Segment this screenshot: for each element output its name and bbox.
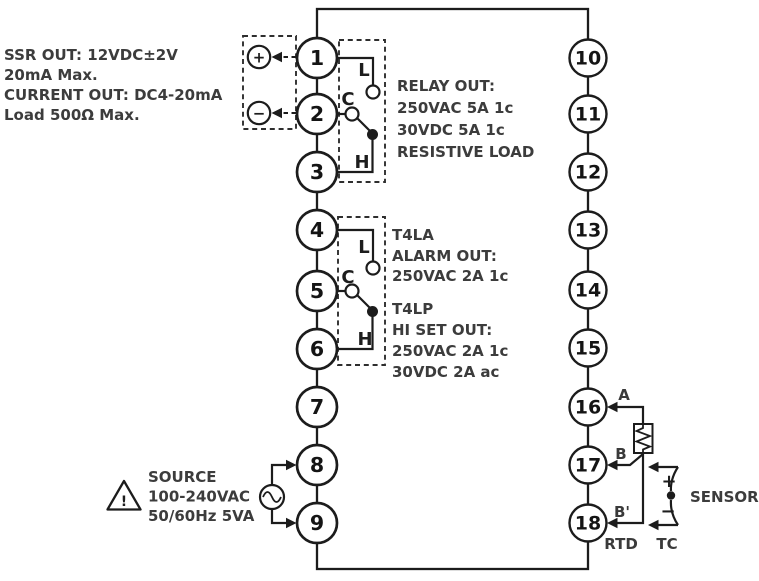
source-note-line-2: 100-240VAC [148,488,250,506]
source-wire-top [272,465,287,485]
terminal-17-number: 17 [575,455,601,477]
terminal-5-number: 5 [310,279,324,303]
hiset-note-line-2: HI SET OUT: [392,321,492,339]
hiset-note-line-1: T4LP [392,300,433,318]
sensor-input-section: A B B' RTD TC + − SENSOR [604,386,759,553]
terminal-9: 9 [297,503,337,543]
power-source-section: ! SOURCE 100-240VAC 50/60Hz 5VA [108,460,297,528]
terminal-18: 18 [570,505,607,542]
terminal-column-right: 10 11 12 13 14 15 16 17 [570,40,607,542]
relay2-h-label: H [357,329,372,350]
rtd-b-label: B [615,445,626,463]
wiring-diagram-canvas: + − SSR OUT: 12VDC±2V 20mA Max. CURRENT … [0,0,759,581]
relay1-l-label: L [358,60,369,81]
terminal-wiring-diagram: + − SSR OUT: 12VDC±2V 20mA Max. CURRENT … [0,0,759,581]
source-arrowhead-top-icon [286,460,297,470]
terminal-8: 8 [297,445,337,485]
terminal-15: 15 [570,330,607,367]
relay1-c-label: C [341,89,354,110]
relay-note-line-4: RESISTIVE LOAD [397,143,534,161]
relay2-h-dot-icon [367,306,378,317]
tc-plus-sign: + [661,471,676,492]
source-note-line-1: SOURCE [148,468,217,486]
terminal-12-number: 12 [575,162,601,184]
terminal-9-number: 9 [310,511,324,535]
tc-minus-arrowhead-icon [648,520,659,530]
terminal-6-number: 6 [310,337,324,361]
alarm-note-line-3: 250VAC 2A 1c [392,267,508,285]
relay2-l-label: L [358,237,369,258]
terminal-1-number: 1 [310,46,324,70]
alarm-note-line-1: T4LA [392,226,434,244]
tc-label: TC [656,535,677,553]
alarm-output-section: L C H T4LA ALARM OUT: 250VAC 2A 1c T4LP … [337,217,508,381]
ssr-note-line-2: 20mA Max. [4,66,98,84]
terminal-13: 13 [570,212,607,249]
tc-minus-sign: − [660,501,675,522]
rtd-a-wire [616,407,643,424]
rtd-a-label: A [618,386,630,404]
terminal-14: 14 [570,272,607,309]
relay2-c-label: C [341,267,354,288]
rtd-label: RTD [604,535,638,553]
analog-output-section: + − [243,36,296,129]
warning-exclamation: ! [121,494,127,510]
source-arrowhead-bottom-icon [286,518,297,528]
rtd-a-arrowhead-icon [607,402,618,412]
relay-note-line-2: 250VAC 5A 1c [397,99,513,117]
terminal-15-number: 15 [575,338,601,360]
rtd-bprime-label: B' [614,503,630,521]
terminal-7: 7 [297,387,337,427]
minus-arrowhead-icon [272,108,283,118]
terminal-13-number: 13 [575,220,601,242]
terminal-18-number: 18 [575,513,601,535]
tc-plus-arrowhead-icon [648,462,659,472]
terminal-10-number: 10 [575,48,601,70]
terminal-4: 4 [297,210,337,250]
relay1-l-contact-icon [367,86,380,99]
hiset-note-line-3: 250VAC 2A 1c [392,342,508,360]
alarm-note-line-2: ALARM OUT: [392,247,497,265]
hiset-note-line-4: 30VDC 2A ac [392,363,499,381]
terminal-7-number: 7 [310,395,324,419]
terminal-3-number: 3 [310,160,324,184]
plus-arrowhead-icon [272,52,283,62]
terminal-11-number: 11 [575,104,601,126]
ssr-note-line-1: SSR OUT: 12VDC±2V [4,46,178,64]
terminal-6: 6 [297,329,337,369]
sensor-label: SENSOR [690,488,759,506]
terminal-4-number: 4 [310,218,324,242]
terminal-1: 1 [297,38,337,78]
relay1-h-dot-icon [367,129,378,140]
terminal-3: 3 [297,152,337,192]
terminal-17: 17 [570,447,607,484]
ssr-note-line-4: Load 500Ω Max. [4,106,140,124]
plus-sign: + [253,49,266,67]
terminal-2-number: 2 [310,102,324,126]
terminal-5: 5 [297,271,337,311]
relay2-switch-arm [357,295,371,309]
tc-junction-icon [667,491,675,499]
terminal-14-number: 14 [575,280,601,302]
terminal-2: 2 [297,94,337,134]
terminal-11: 11 [570,96,607,133]
source-note-line-3: 50/60Hz 5VA [148,507,255,525]
terminal-column-left: 1 2 3 4 5 6 7 8 [297,38,337,543]
ssr-note: SSR OUT: 12VDC±2V 20mA Max. CURRENT OUT:… [4,46,223,124]
terminal-16-number: 16 [575,397,601,419]
terminal-12: 12 [570,154,607,191]
relay-note-line-3: 30VDC 5A 1c [397,121,505,139]
relay1-h-label: H [354,152,369,173]
relay-output-section: L C H RELAY OUT: 250VAC 5A 1c 30VDC 5A 1… [337,40,534,182]
relay1-switch-arm [357,118,371,132]
relay2-l-contact-icon [367,262,380,275]
ssr-note-line-3: CURRENT OUT: DC4-20mA [4,86,223,104]
terminal-16: 16 [570,389,607,426]
terminal-10: 10 [570,40,607,77]
minus-sign: − [253,105,266,123]
source-wire-bottom [272,509,287,523]
terminal-8-number: 8 [310,453,324,477]
relay-note-line-1: RELAY OUT: [397,77,495,95]
